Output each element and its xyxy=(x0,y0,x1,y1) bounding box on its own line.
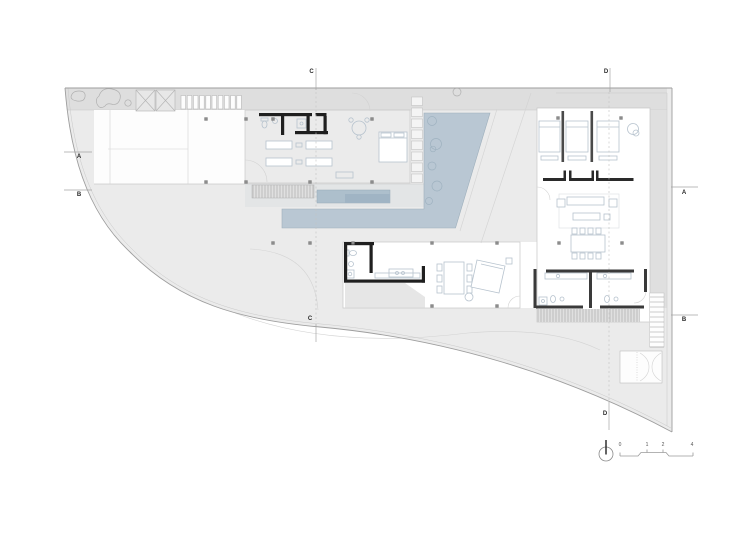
section-marker-a-right: A xyxy=(682,190,686,196)
section-marker-b-left: B xyxy=(77,192,81,198)
floor-plan-drawing xyxy=(0,0,750,534)
lap-pool xyxy=(317,190,390,203)
floor-plan-canvas: C D A B A B C D 0 1 2 4 xyxy=(0,0,750,534)
section-marker-d-bottom: D xyxy=(603,411,607,417)
scale-tick-0: 0 xyxy=(619,443,622,448)
section-marker-b-right: B xyxy=(682,317,686,323)
top-band xyxy=(65,88,667,110)
section-marker-c-bottom: C xyxy=(308,316,312,322)
bedroom-upper-left xyxy=(379,132,407,162)
north-arrow-icon xyxy=(599,440,613,461)
section-marker-c-top: C xyxy=(309,69,313,75)
section-marker-d-top: D xyxy=(604,69,608,75)
utility-room xyxy=(620,351,662,383)
deck-stairs-hatch xyxy=(252,185,314,198)
deck-hatch-right xyxy=(537,309,640,322)
scale-tick-2: 2 xyxy=(662,443,665,448)
right-band xyxy=(650,110,667,308)
scale-bar xyxy=(620,450,693,457)
left-courtyard xyxy=(94,110,245,184)
section-marker-a-left: A xyxy=(77,154,81,160)
right-stairs xyxy=(650,293,665,347)
scale-tick-4: 4 xyxy=(691,443,694,448)
scale-tick-1: 1 xyxy=(646,443,649,448)
